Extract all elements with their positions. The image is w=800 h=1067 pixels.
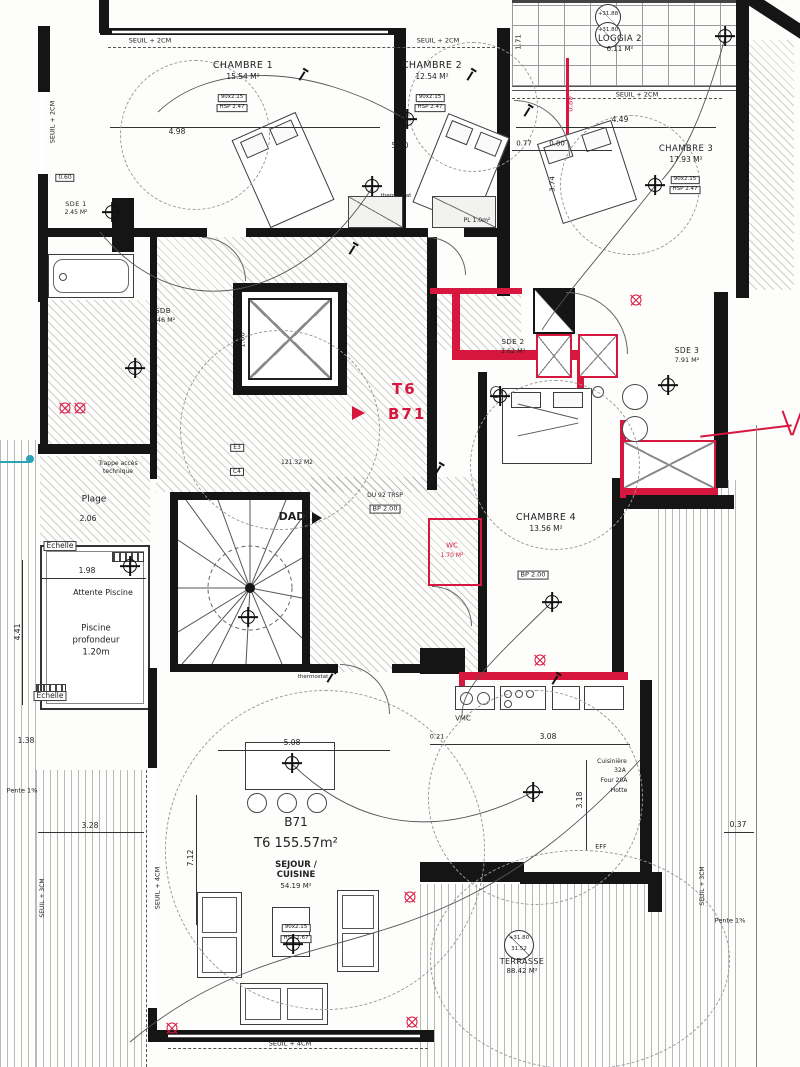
- annotation-label: MAV 2x8F: [490, 291, 517, 297]
- room-label-chambre4: CHAMBRE 4 13.56 M²: [516, 512, 576, 533]
- red-spot-icon: [404, 1014, 420, 1030]
- red-spot-icon: [532, 652, 548, 668]
- unit-number-tag: B71: [388, 405, 426, 423]
- dimension-label: 4.98: [169, 128, 186, 136]
- height-tag: HSP 2.47: [670, 186, 701, 194]
- dimension-label: 0.80: [567, 96, 574, 112]
- threshold-label: SEUIL + 2CM: [129, 38, 171, 45]
- wc-label: 1.70 M²: [441, 553, 464, 559]
- ladder-label: Echelle: [33, 691, 66, 701]
- dimension-label: 0.77: [516, 140, 532, 147]
- door-swing: [428, 237, 466, 275]
- slope-label: Pente 1%: [715, 918, 746, 925]
- kitchen-counter-red: [463, 672, 628, 680]
- dimension-line: [724, 832, 754, 833]
- dimension-label: 7.12: [187, 850, 195, 867]
- bottomleft-terrace-decking: [36, 770, 146, 1067]
- red-marker-v: [782, 410, 793, 435]
- ceiling-light-icon: [123, 559, 137, 573]
- ceiling-light-icon: [128, 361, 142, 375]
- room-label-sejour: SEJOUR / CUISINE 54.19 M²: [275, 860, 317, 890]
- ceiling-light-icon: [365, 179, 379, 193]
- kitchen-elec-label: 32A: [614, 768, 626, 774]
- red-spot-icon: [628, 292, 644, 308]
- tag-label: BP 2.00: [518, 571, 549, 580]
- coverage-zone: [180, 330, 380, 530]
- drain-mark: [0, 461, 30, 463]
- dimension-label: 0.37: [730, 821, 747, 829]
- dimension-label: 1.60: [239, 332, 246, 348]
- tag-label: C4: [230, 468, 244, 476]
- ceiling-light-icon: [285, 756, 299, 770]
- room-label-sde2: SDE 2 3.62 M²: [501, 338, 526, 355]
- dimension-line: [42, 578, 146, 579]
- room-label-sde3: SDE 3 7.91 M²: [675, 346, 700, 364]
- dimension-label: 5.08: [284, 739, 301, 747]
- threshold-label: SEUIL + 4CM: [269, 1041, 311, 1048]
- wall: [624, 495, 734, 509]
- vmc-label: VMC: [455, 715, 471, 722]
- kitchen-elec-label: Four 20A: [601, 778, 628, 784]
- deck-boundary: [146, 770, 147, 1067]
- wall: [38, 26, 50, 92]
- dimension-label: 1.98: [79, 567, 96, 575]
- threshold-label: SEUIL + 3CM: [700, 866, 706, 905]
- wall: [150, 237, 157, 479]
- window: [112, 30, 388, 34]
- room-label-chambre2: CHAMBRE 2 12.54 M²: [402, 60, 462, 81]
- exterior-hatching: [748, 40, 794, 290]
- door-tag: 90x2.15: [416, 94, 445, 102]
- red-marker-v: [792, 410, 800, 435]
- wall: [38, 174, 48, 302]
- ceiling-light-icon: [241, 610, 255, 624]
- ceiling-light-icon: [493, 389, 507, 403]
- annotation-label: EFF: [595, 844, 607, 851]
- dimension-label: 4.49: [612, 116, 629, 124]
- pool-label: Piscine: [81, 625, 110, 634]
- ceiling-light-icon: [526, 785, 540, 799]
- drain-mark: [26, 455, 34, 463]
- height-tag: HSP 2.47: [217, 104, 248, 112]
- thermostat-label: thermostat: [298, 675, 328, 681]
- ladder-label: Echelle: [43, 541, 76, 551]
- ceiling-light-icon: [105, 205, 119, 219]
- wall: [512, 0, 736, 3]
- dimension-label: 3.74: [549, 176, 556, 192]
- wall: [392, 664, 432, 673]
- kitchen-elec-label: Cuisinière: [597, 759, 627, 765]
- dimension-label: 2.06: [80, 515, 97, 523]
- level-value: +31.88: [598, 12, 618, 18]
- door-tag: 90x2.15: [671, 176, 700, 184]
- floor-plan: CHAMBRE 1 15.54 M² CHAMBRE 2 12.54 M² CH…: [0, 0, 800, 1067]
- pool-label: profondeur: [73, 637, 120, 646]
- threshold-label: SEUIL + 2CM: [417, 38, 459, 45]
- threshold-line: [108, 47, 500, 48]
- window: [168, 1034, 420, 1038]
- closet-label: PL 1.0m²: [464, 218, 491, 224]
- window: [40, 92, 45, 176]
- wall: [148, 668, 157, 768]
- thermostat-label: thermostat: [381, 194, 411, 200]
- dimension-label: 5.50: [392, 142, 409, 150]
- level-value: +31.80: [509, 936, 529, 942]
- hatch-access-label: technique: [103, 469, 133, 475]
- tag-label: E3: [230, 444, 244, 452]
- unit-pointer-icon: [352, 406, 365, 420]
- threshold-label: SEUIL + 3CM: [40, 878, 46, 917]
- door-swing: [566, 292, 628, 354]
- dimension-label: 3.28: [82, 822, 99, 830]
- wall: [40, 296, 48, 448]
- wall: [246, 228, 428, 237]
- dimension-label: 0.80: [549, 140, 565, 147]
- switch-icon: [299, 71, 306, 81]
- door-tag: 90x2.15: [282, 924, 311, 932]
- pool-label: 1.20m: [82, 649, 109, 658]
- room-label-terrasse: TERRASSE 88.42 M²: [500, 957, 545, 975]
- ceiling-light-icon: [648, 178, 662, 192]
- apartment-type-area: T6 155.57m²: [254, 836, 338, 851]
- dimension-label: 4.41: [14, 624, 22, 641]
- property-line: [756, 425, 757, 1067]
- wall: [464, 228, 506, 237]
- dimension-label: 0.21: [430, 734, 444, 741]
- room-label-chambre3: CHAMBRE 3 17.93 M²: [659, 144, 713, 164]
- annotation-label: 121.32 M2: [281, 460, 313, 466]
- threshold-line: [168, 1048, 428, 1049]
- level-value: +31.80: [598, 28, 618, 34]
- coverage-zone: [430, 850, 730, 1067]
- tag-label: 0.60: [55, 174, 74, 182]
- room-label-sdb: SDB 9.46 M²: [151, 307, 176, 324]
- threshold-label: SEUIL + 2CM: [50, 101, 57, 143]
- wall: [736, 0, 749, 298]
- annotation-label: DU 92 TRSP: [367, 493, 403, 499]
- washbasin: [622, 384, 648, 410]
- room-label-sde1: SDE 1 2.45 M²: [65, 200, 88, 216]
- dimension-line: [22, 560, 23, 705]
- height-tag: HSP 2.47: [415, 104, 446, 112]
- coverage-zone: [120, 60, 270, 210]
- dimension-line: [38, 832, 144, 833]
- ceiling-light-icon: [400, 112, 414, 126]
- dimension-label: 3.18: [576, 792, 584, 809]
- hatch-access-label: Trappe accès: [98, 461, 137, 467]
- closet: [348, 196, 403, 228]
- dimension-label: 1.71: [515, 34, 522, 50]
- pool-waiting-label: Attente Piscine: [73, 589, 133, 597]
- dimension-label: 3.08: [540, 733, 557, 741]
- ceiling-light-icon: [286, 937, 300, 951]
- room-label-chambre1: CHAMBRE 1 15.54 M²: [213, 60, 273, 81]
- wall: [714, 292, 728, 488]
- wall: [640, 680, 652, 876]
- threshold-label: SEUIL + 4CM: [155, 867, 162, 909]
- dimension-label: 1.38: [18, 737, 35, 745]
- left-terrace-decking: [0, 440, 36, 1067]
- dad-label: DAD: [279, 510, 306, 523]
- bathtub: [48, 254, 134, 298]
- ceiling-light-icon: [718, 29, 732, 43]
- door-tag: 90x2.15: [218, 94, 247, 102]
- slope-label: Pente 1%: [7, 788, 38, 795]
- room-label-loggia2: LOGGIA 2 6.11 M²: [598, 34, 642, 53]
- ceiling-light-icon: [545, 595, 559, 609]
- wc-label: WC: [446, 542, 458, 549]
- threshold-label: SEUIL + 2CM: [616, 92, 658, 99]
- tag-label: BP 2.00: [370, 505, 401, 514]
- apartment-code: B71: [284, 815, 308, 829]
- coverage-zone: [560, 115, 700, 255]
- unit-type-tag: T6: [392, 380, 417, 398]
- kitchen-elec-label: Hotte: [611, 788, 628, 794]
- ceiling-light-icon: [661, 378, 675, 392]
- wall: [38, 444, 152, 454]
- level-value: 31.52: [511, 947, 527, 953]
- dad-pointer-icon: [312, 512, 322, 524]
- pool-deck-label: Plage: [82, 495, 107, 504]
